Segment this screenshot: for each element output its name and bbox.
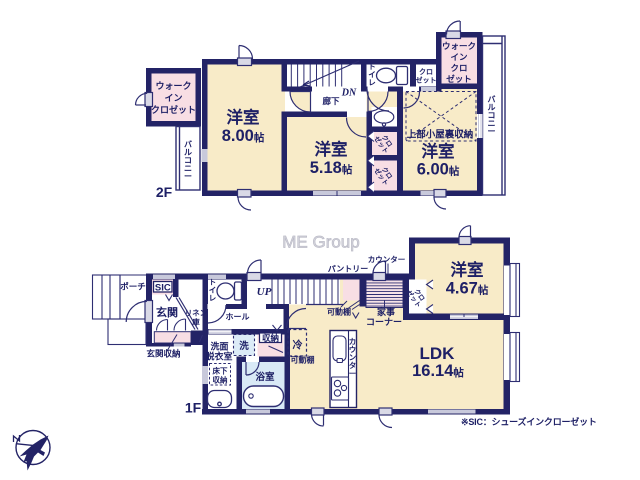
svg-text:ポーチ: ポーチ [120,282,146,292]
svg-text:ウォーク: ウォーク [442,41,476,51]
svg-text:洋室: 洋室 [422,141,455,161]
svg-text:ホール: ホール [226,313,250,322]
svg-text:パントリー: パントリー [328,264,368,274]
svg-text:LDK: LDK [420,344,456,363]
svg-text:脱衣室: 脱衣室 [205,351,232,362]
svg-text:洗: 洗 [239,340,249,352]
svg-text:ウォーク: ウォーク [155,81,191,91]
svg-text:玄関: 玄関 [156,305,178,319]
svg-text:クロゼット: クロゼット [151,104,196,115]
svg-text:※SIC：シューズインクローゼット: ※SIC：シューズインクローゼット [461,416,597,427]
svg-text:廊下: 廊下 [322,96,340,106]
svg-text:ゼット: ゼット [416,76,437,85]
svg-text:家事: 家事 [377,306,395,317]
svg-text:浴室: 浴室 [255,371,275,383]
svg-text:1F: 1F [185,400,202,416]
svg-text:収納: 収納 [213,375,228,385]
svg-text:ー: ー [488,127,496,136]
svg-text:コーナー: コーナー [366,317,402,327]
svg-text:可動棚: 可動棚 [291,355,315,365]
svg-text:レ: レ [209,294,217,303]
svg-text:洗面: 洗面 [210,341,228,352]
svg-text:クロ: クロ [419,67,433,76]
svg-text:収納: 収納 [262,333,279,343]
svg-text:可動棚: 可動棚 [327,307,351,317]
svg-text:洋室: 洋室 [451,260,484,280]
svg-text:カウンター: カウンター [368,254,406,264]
svg-text:洋室: 洋室 [227,107,260,127]
svg-text:SIC: SIC [155,283,171,294]
svg-text:ゼット: ゼット [446,74,472,84]
svg-text:リネン: リネン [185,309,208,318]
svg-text:洋室: 洋室 [315,139,348,159]
svg-text:玄関収納: 玄関収納 [146,349,180,359]
svg-text:ー: ー [349,369,357,378]
svg-text:ME Group: ME Group [282,233,359,252]
svg-text:イン: イン [164,93,182,103]
svg-text:レ: レ [368,78,376,87]
svg-text:ー: ー [184,172,192,181]
svg-text:床下: 床下 [213,366,228,376]
svg-text:上部小屋裏収納: 上部小屋裏収納 [407,129,474,141]
svg-text:2F: 2F [156,184,173,200]
svg-text:イン: イン [450,52,468,62]
svg-text:冷: 冷 [293,339,303,352]
svg-text:庫: 庫 [192,317,200,327]
svg-text:UP: UP [257,286,272,298]
svg-text:DN: DN [341,88,357,99]
svg-text:クロ: クロ [450,63,467,73]
